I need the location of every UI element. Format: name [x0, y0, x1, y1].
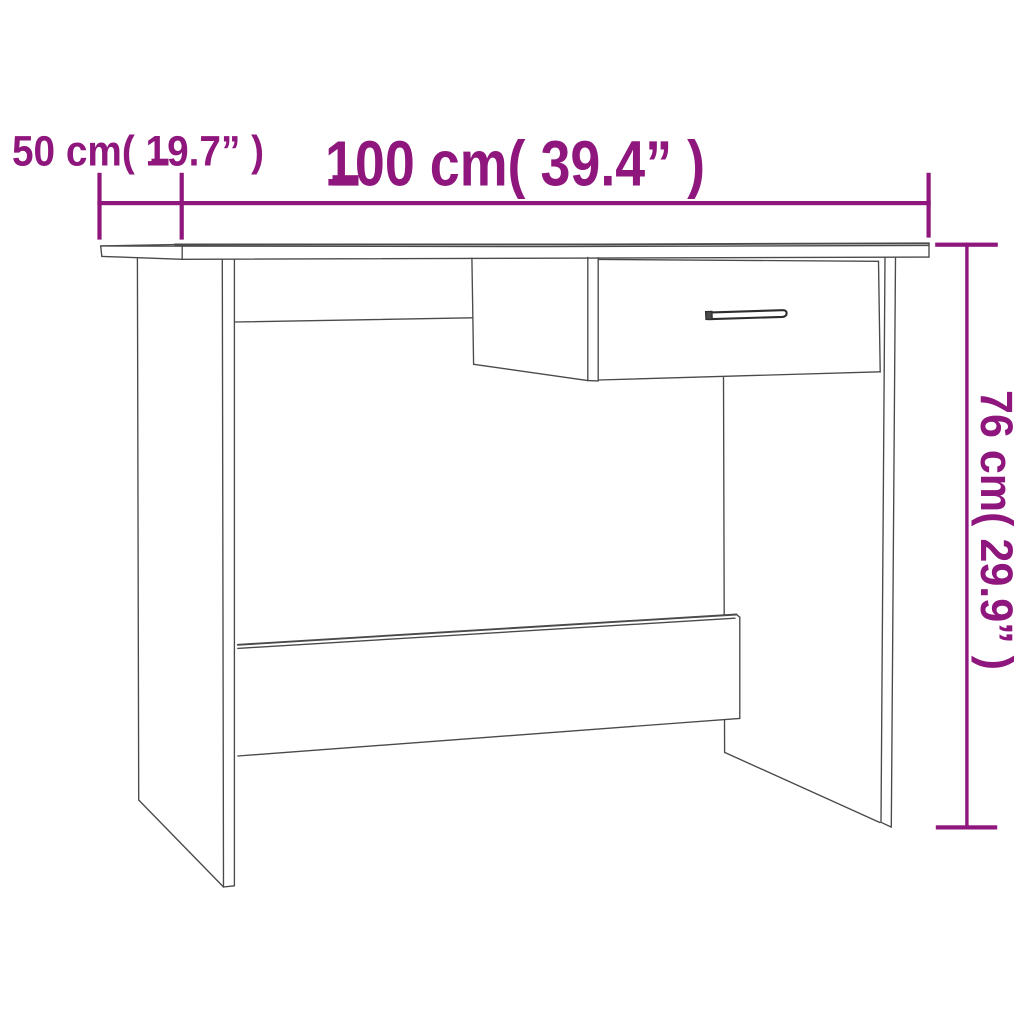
svg-text:76 cm( 29.9” ): 76 cm( 29.9” )	[971, 390, 1022, 670]
svg-text:50 cm( 19.7” ): 50 cm( 19.7” )	[12, 127, 264, 175]
svg-text:100 cm( 39.4” ): 100 cm( 39.4” )	[325, 128, 705, 200]
